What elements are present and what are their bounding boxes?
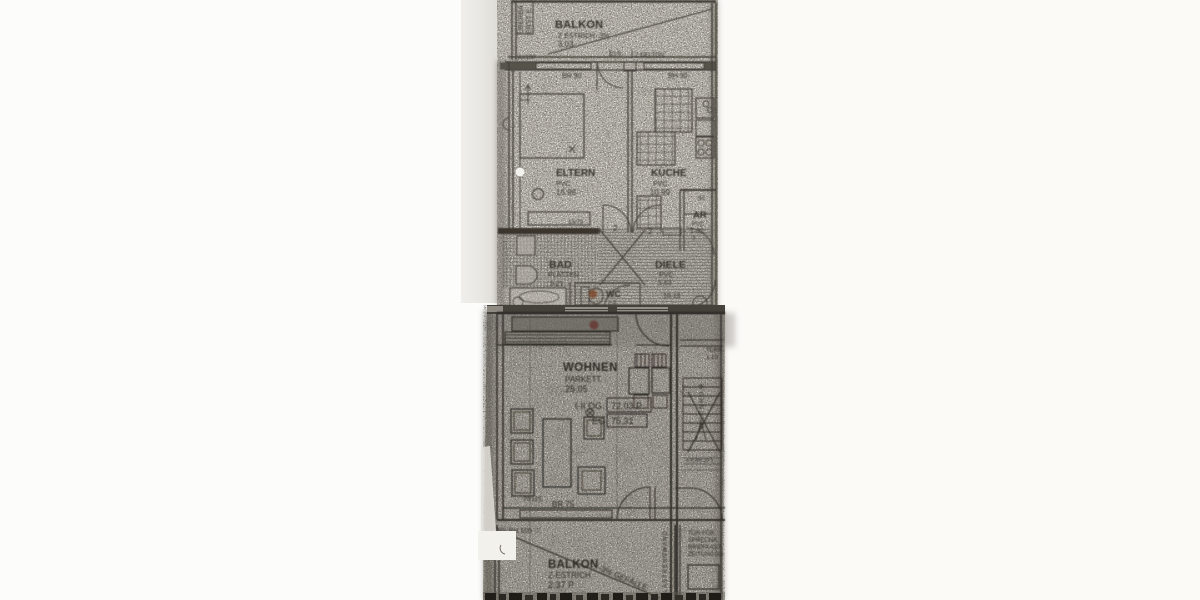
svg-text:25.05: 25.05 bbox=[565, 384, 588, 394]
svg-text:ÜBERBA: ÜBERBA bbox=[517, 5, 525, 34]
svg-text:Z-ESTRICH: Z-ESTRICH bbox=[548, 571, 591, 580]
svg-text:PARKETT: PARKETT bbox=[565, 375, 601, 384]
svg-text:10.99: 10.99 bbox=[650, 188, 671, 197]
svg-text:90: 90 bbox=[698, 196, 705, 202]
svg-text:TERR.: TERR. bbox=[706, 348, 724, 354]
svg-text:PVC: PVC bbox=[659, 272, 673, 279]
svg-text:I·II OG.: I·II OG. bbox=[575, 401, 605, 411]
svg-text:BALKON: BALKON bbox=[555, 19, 603, 31]
svg-text:5.63: 5.63 bbox=[658, 280, 672, 287]
svg-text:ERST E.: ERST E. bbox=[526, 7, 533, 34]
svg-text:WC: WC bbox=[606, 289, 621, 299]
svg-text:10.18: 10.18 bbox=[663, 293, 681, 300]
svg-text:BH 90: BH 90 bbox=[668, 73, 688, 80]
svg-text:Z ESTRICH -3%: Z ESTRICH -3% bbox=[558, 33, 609, 40]
svg-text:GLASTRENNWAND: GLASTRENNWAND bbox=[663, 530, 669, 598]
svg-text:DIELE: DIELE bbox=[655, 259, 686, 271]
svg-text:WOHNUNG: WOHNUNG bbox=[697, 384, 703, 430]
svg-text:ELTERN: ELTERN bbox=[556, 168, 595, 179]
svg-text:KÜCHE: KÜCHE bbox=[651, 166, 687, 179]
svg-text:a.R.BH.20.5: a.R.BH.20.5 bbox=[686, 458, 713, 464]
svg-text:16.98: 16.98 bbox=[556, 188, 577, 197]
svg-text:A×100: A×100 bbox=[518, 55, 536, 61]
svg-text:3.03: 3.03 bbox=[558, 40, 574, 49]
svg-text:1.10: 1.10 bbox=[706, 355, 718, 361]
svg-text:2.37 P: 2.37 P bbox=[548, 580, 574, 590]
svg-text:70/12S: 70/12S bbox=[523, 497, 542, 503]
svg-text:SPRECHA.: SPRECHA. bbox=[688, 538, 719, 544]
svg-text:11/9: 11/9 bbox=[610, 52, 622, 58]
svg-text:TÜR FÜR: TÜR FÜR bbox=[688, 530, 715, 537]
svg-text:PLATTEN: PLATTEN bbox=[548, 272, 579, 279]
svg-text:BAD: BAD bbox=[549, 259, 572, 271]
svg-text:2: 2 bbox=[648, 227, 653, 236]
svg-text:BR 90: BR 90 bbox=[562, 73, 582, 80]
svg-text:13/73: 13/73 bbox=[568, 220, 584, 226]
svg-text:PVC: PVC bbox=[556, 181, 570, 188]
svg-text:BRIEFKAST.: BRIEFKAST. bbox=[688, 545, 723, 551]
svg-text:75.31: 75.31 bbox=[611, 416, 634, 426]
svg-text:72.03 P: 72.03 P bbox=[611, 401, 642, 411]
svg-text:ZEITUNGSG.: ZEITUNGSG. bbox=[688, 552, 725, 558]
svg-text:BR 75: BR 75 bbox=[552, 500, 575, 509]
svg-text:WOHNEN: WOHNEN bbox=[563, 362, 618, 374]
svg-text:1.02: 1.02 bbox=[690, 228, 704, 235]
svg-text:2 GELTON: 2 GELTON bbox=[635, 53, 664, 59]
svg-text:5.21: 5.21 bbox=[550, 281, 564, 288]
svg-text:2: 2 bbox=[613, 224, 618, 233]
svg-text:PVC: PVC bbox=[653, 181, 667, 188]
svg-text:BALKON: BALKON bbox=[548, 559, 598, 571]
svg-text:EG: EG bbox=[592, 416, 605, 426]
svg-text:AR: AR bbox=[693, 210, 707, 221]
